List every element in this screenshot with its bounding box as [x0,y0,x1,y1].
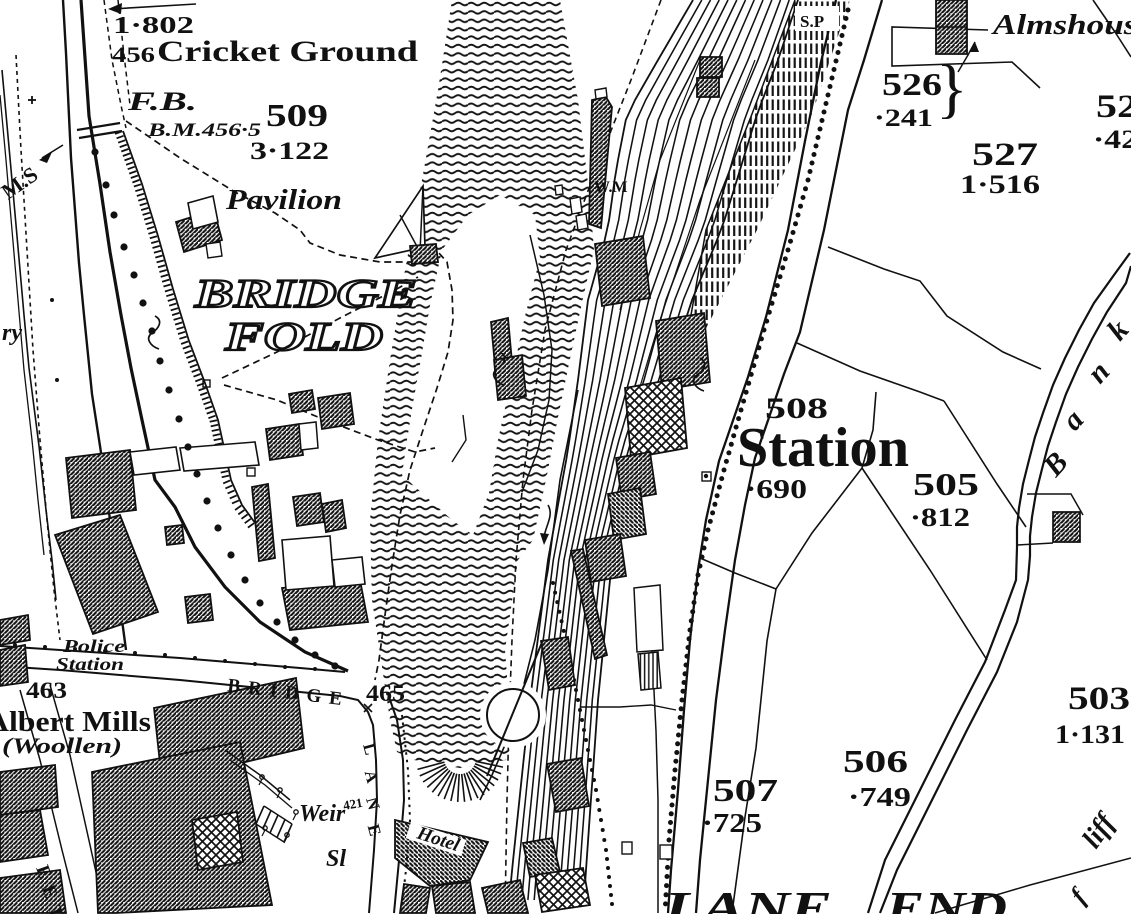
svg-text:507: 507 [713,772,778,808]
svg-text:Sl: Sl [326,846,346,872]
svg-text:·749: ·749 [848,782,911,812]
svg-text:Cricket Ground: Cricket Ground [157,35,418,68]
svg-text:Station: Station [56,654,124,674]
svg-text:503: 503 [1068,681,1130,717]
svg-text:LANE: LANE [663,882,832,914]
svg-text:·42: ·42 [1093,125,1131,154]
svg-text:·690: ·690 [745,474,807,504]
svg-text:Weir: Weir [299,801,346,827]
svg-text:}: } [936,52,968,125]
svg-text:·241: ·241 [874,105,933,132]
svg-text:505: 505 [913,466,979,502]
svg-text:FOLD: FOLD [224,314,383,359]
svg-text:3·122: 3·122 [250,138,329,165]
svg-text:(Woollen): (Woollen) [2,733,122,758]
svg-text:1·516: 1·516 [960,170,1040,199]
svg-text:527: 527 [972,137,1038,173]
svg-text:509: 509 [266,97,328,133]
svg-text:526: 526 [882,66,942,102]
svg-text:1·131: 1·131 [1055,720,1125,749]
svg-text:Pavilion: Pavilion [225,185,342,216]
svg-text:BRIDGE: BRIDGE [194,271,417,316]
svg-text:Almshouse: Almshouse [990,10,1131,41]
svg-text:W.M: W.M [594,179,628,196]
svg-text:52: 52 [1096,89,1131,125]
svg-text:S.P: S.P [800,12,824,31]
svg-text:ry: ry [2,320,22,346]
svg-text:Police: Police [62,636,125,656]
svg-text:·725: ·725 [702,808,762,838]
svg-text:456: 456 [112,42,155,67]
svg-text:END: END [885,882,1007,914]
svg-text:465: 465 [366,681,405,706]
svg-text:463: 463 [26,678,67,703]
svg-text:506: 506 [843,743,908,779]
svg-text:Station: Station [737,417,909,479]
svg-text:B.M.456·5: B.M.456·5 [147,120,262,141]
svg-text:·812: ·812 [910,503,970,532]
svg-text:F.B.: F.B. [126,87,197,116]
